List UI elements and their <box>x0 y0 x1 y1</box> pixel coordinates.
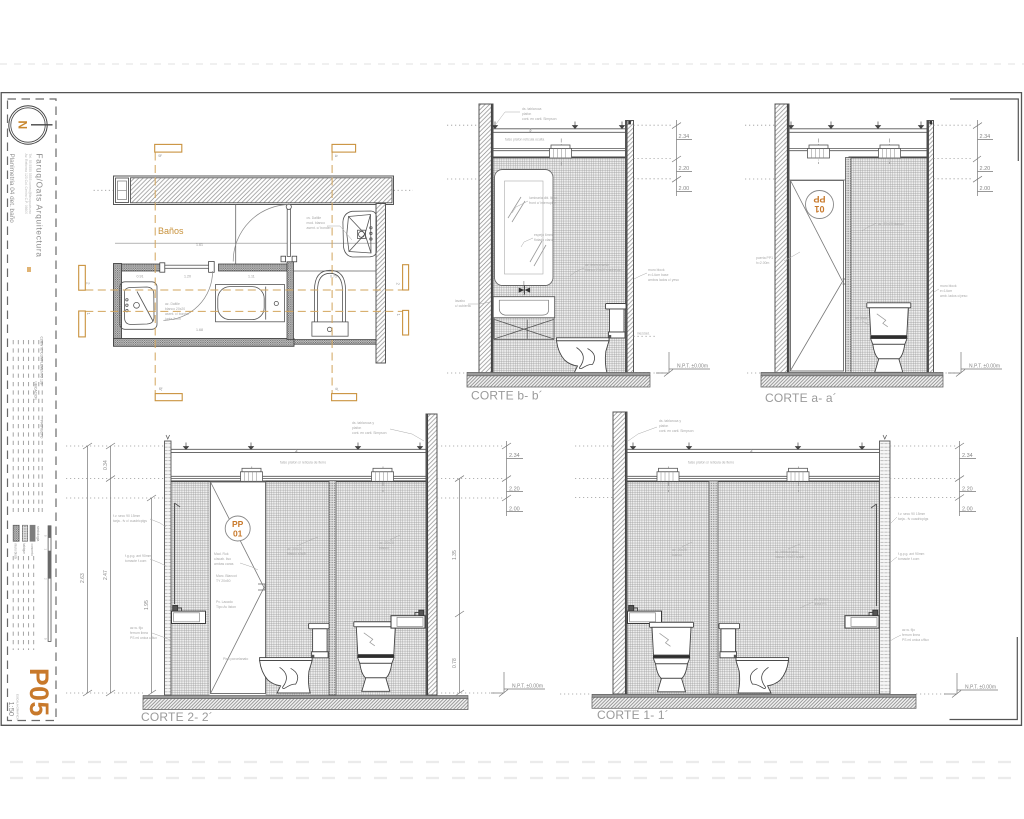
svg-text:az.w. fijo: az.w. fijo <box>902 628 915 632</box>
svg-text:mod. blanco: mod. blanco <box>307 221 326 225</box>
svg-text:c/acab. liso: c/acab. liso <box>214 557 231 561</box>
svg-text:wc linea: wc linea <box>855 316 867 320</box>
svg-text:0.78: 0.78 <box>452 658 458 668</box>
svg-text:tabique: tabique <box>22 544 26 555</box>
svg-text:2.00: 2.00 <box>509 507 520 513</box>
svg-text:1:50: 1:50 <box>7 702 16 717</box>
svg-text:a': a' <box>335 388 340 392</box>
svg-text:PS ml unica c/flux: PS ml unica c/flux <box>130 636 157 640</box>
svg-text:0.91: 0.91 <box>137 275 144 279</box>
svg-text:plafon: plafon <box>522 112 531 116</box>
svg-text:01: 01 <box>814 204 824 214</box>
svg-text:blanco: blanco <box>672 553 682 557</box>
svg-text:Marc. Blancot: Marc. Blancot <box>216 574 237 578</box>
svg-text:tomacte f.com: tomacte f.com <box>898 557 919 561</box>
svg-text:muro block: muro block <box>940 284 957 288</box>
svg-text:tomacte f.com: tomacte f.com <box>125 559 146 563</box>
svg-text:blanco s/adh: blanco s/adh <box>287 552 306 556</box>
svg-text:espejo 6mm: espejo 6mm <box>534 233 553 237</box>
svg-text:ds. tablaroca: ds. tablaroca <box>522 107 542 111</box>
svg-text:blanco 20x20: blanco 20x20 <box>165 307 185 311</box>
svg-text:N.P.T. ±0.00m: N.P.T. ±0.00m <box>965 685 996 691</box>
svg-text:PP: PP <box>232 519 244 529</box>
svg-text:1.20: 1.20 <box>184 275 191 279</box>
svg-text:2.20: 2.20 <box>679 166 690 172</box>
svg-text:2.00: 2.00 <box>679 186 690 192</box>
svg-text:Baños: Baños <box>158 226 184 236</box>
svg-text:wc ferrum: wc ferrum <box>814 597 829 601</box>
svg-text:1.95: 1.95 <box>144 600 150 610</box>
svg-text:Av. Reforma 123 Col. Centro: Av. Reforma 123 Col. Centro C.P. 06600 <box>24 154 28 215</box>
svg-text:2.20: 2.20 <box>509 487 520 493</box>
svg-text:PS ml unica c/flux: PS ml unica c/flux <box>902 638 929 642</box>
svg-text:blanco 20x20 s/adh: blanco 20x20 s/adh <box>775 555 805 559</box>
svg-text:b': b' <box>158 388 163 392</box>
svg-text:CLIENTE: COMPLEMENTO 128: CLIENTE: COMPLEMENTO 128 <box>39 337 43 385</box>
svg-text:junta 2mm: junta 2mm <box>164 317 181 321</box>
svg-text:falso plafon s/ reticula de fi: falso plafon s/ reticula de fierro <box>688 461 734 465</box>
svg-text:e=14cm: e=14cm <box>940 289 952 293</box>
svg-text:N.P.T. ±0.00m: N.P.T. ±0.00m <box>512 684 543 690</box>
svg-text:0.75: 0.75 <box>330 275 337 279</box>
svg-text:muro block: muro block <box>14 544 18 560</box>
svg-text:2.00: 2.00 <box>980 186 991 192</box>
svg-text:TY 20x50: TY 20x50 <box>216 579 231 583</box>
svg-text:az. 20x20: az. 20x20 <box>672 548 687 552</box>
svg-text:az. Daltile: az. Daltile <box>165 302 180 306</box>
svg-text:Tel. 55 5555 5555 correo@far: Tel. 55 5555 5555 correo@faruqoats.mx <box>28 154 32 215</box>
svg-text:az. 20x20: az. 20x20 <box>379 541 394 545</box>
svg-text:0.34: 0.34 <box>103 460 109 470</box>
svg-text:2.20: 2.20 <box>962 487 973 493</box>
svg-text:puerta PP1: puerta PP1 <box>756 256 773 260</box>
svg-text:ds. tablaroca y: ds. tablaroca y <box>659 419 681 423</box>
svg-text:falso plafon reticula oculta: falso plafon reticula oculta <box>505 138 544 142</box>
svg-text:tarja - fv c/ cuadricplgs: tarja - fv c/ cuadricplgs <box>113 519 147 523</box>
svg-text:P05: P05 <box>24 668 54 717</box>
svg-text:1.11: 1.11 <box>248 275 255 279</box>
svg-text:CORTE a- a´: CORTE a- a´ <box>765 391 837 405</box>
svg-text:2.34: 2.34 <box>962 453 973 459</box>
svg-text:e=14cm base: e=14cm base <box>648 273 669 277</box>
svg-text:ferrum linea: ferrum linea <box>130 631 148 635</box>
svg-text:plafon: plafon <box>352 426 361 430</box>
svg-text:concreto: concreto <box>30 544 34 556</box>
svg-text:simbologia: simbologia <box>36 526 40 541</box>
svg-text:ambas caras: ambas caras <box>214 562 234 566</box>
svg-text:2.47: 2.47 <box>103 570 109 580</box>
svg-text:ds. tablaroca y: ds. tablaroca y <box>352 421 374 425</box>
svg-text:f.v. secc 90 15mm: f.v. secc 90 15mm <box>898 512 925 516</box>
svg-text:ESCALA GRAFICA: ESCALA GRAFICA <box>16 694 20 720</box>
svg-text:Mad. Ruk: Mad. Ruk <box>214 552 229 556</box>
svg-text:2.34: 2.34 <box>980 134 991 140</box>
svg-text:1.61: 1.61 <box>196 243 203 247</box>
svg-text:luminaria dbl. linea: luminaria dbl. linea <box>529 196 557 200</box>
svg-text:blanco: blanco <box>379 546 389 550</box>
svg-text:2.34: 2.34 <box>679 134 690 140</box>
svg-text:h=2.00m: h=2.00m <box>756 261 769 265</box>
svg-text:flotado claro: flotado claro <box>534 238 553 242</box>
svg-text:1.35: 1.35 <box>452 550 458 560</box>
svg-text:asent. c/ bonder: asent. c/ bonder <box>165 312 190 316</box>
svg-text:f.g.p.g. ant 90mm: f.g.p.g. ant 90mm <box>125 554 152 558</box>
svg-text:blanco 20x20 s/adhesivo: blanco 20x20 s/adhesivo <box>585 268 622 272</box>
svg-text:2.20: 2.20 <box>980 166 991 172</box>
svg-text:mezclad.: mezclad. <box>637 332 650 336</box>
svg-text:ambos lados c/ yeso: ambos lados c/ yeso <box>648 278 679 282</box>
svg-text:c/ cubierta: c/ cubierta <box>455 304 471 308</box>
svg-text:plafon: plafon <box>659 424 668 428</box>
svg-text:front c/ interruptor: front c/ interruptor <box>529 201 557 205</box>
svg-text:N.P.T. ±0.00m: N.P.T. ±0.00m <box>677 364 708 370</box>
svg-text:asent. c/ bonder: asent. c/ bonder <box>307 226 332 230</box>
svg-text:2.63: 2.63 <box>80 573 86 583</box>
svg-text:Piso porcelanato: Piso porcelanato <box>223 657 248 661</box>
svg-text:lavabo: lavabo <box>455 299 465 303</box>
svg-text:N.P.T. ±0.00m: N.P.T. ±0.00m <box>969 364 1000 370</box>
svg-text:az. 20x20: az. 20x20 <box>287 547 302 551</box>
svg-text:2.00: 2.00 <box>962 507 973 513</box>
svg-text:f.g.p.g. ant 90mm: f.g.p.g. ant 90mm <box>898 552 925 556</box>
svg-text:muro block: muro block <box>648 268 665 272</box>
svg-text:CORTE b- b´: CORTE b- b´ <box>471 389 543 403</box>
svg-text:f.v. secc 90 15mm: f.v. secc 90 15mm <box>113 514 140 518</box>
svg-text:tarja - fv cuadricplgs: tarja - fv cuadricplgs <box>898 517 929 521</box>
svg-text:az. interceramic: az. interceramic <box>585 263 609 267</box>
svg-text:PROYECTO: PROYECTO <box>39 420 43 439</box>
svg-text:Tipo Av liston: Tipo Av liston <box>216 605 236 609</box>
svg-text:N: N <box>16 121 30 130</box>
svg-text:amb. lados c/yeso: amb. lados c/yeso <box>940 294 967 298</box>
svg-text:Pv. Lacado: Pv. Lacado <box>216 600 233 604</box>
svg-text:az.w. fijo: az.w. fijo <box>130 626 143 630</box>
svg-text:Faruq/Oats Arquitectura: Faruq/Oats Arquitectura <box>35 154 44 258</box>
svg-text:cont. en carti. Simpson: cont. en carti. Simpson <box>352 431 387 435</box>
svg-text:ferrum linea: ferrum linea <box>902 633 920 637</box>
svg-text:1.68: 1.68 <box>196 328 203 332</box>
svg-text:ov. Daltile: ov. Daltile <box>307 216 322 220</box>
svg-text:az. 20x20 blanco: az. 20x20 blanco <box>878 222 904 226</box>
svg-text:01: 01 <box>233 529 243 539</box>
svg-text:CORTE 2- 2´: CORTE 2- 2´ <box>141 710 213 724</box>
svg-text:az. interceramic: az. interceramic <box>775 550 799 554</box>
svg-text:falso plafon s/ reticula de fi: falso plafon s/ reticula de fierro <box>280 461 326 465</box>
svg-text:linea PS: linea PS <box>814 602 827 606</box>
svg-text:cont. en carti. Simpson: cont. en carti. Simpson <box>522 117 557 121</box>
svg-text:Planimetria 04 det. baño: Planimetria 04 det. baño <box>8 154 15 224</box>
svg-text:PP: PP <box>813 194 825 204</box>
svg-text:CORTE 1- 1´: CORTE 1- 1´ <box>597 708 669 722</box>
svg-text:cont. en carti. Simpson: cont. en carti. Simpson <box>659 429 694 433</box>
svg-text:UBICACION: UBICACION <box>34 382 38 401</box>
svg-text:2.34: 2.34 <box>509 453 520 459</box>
